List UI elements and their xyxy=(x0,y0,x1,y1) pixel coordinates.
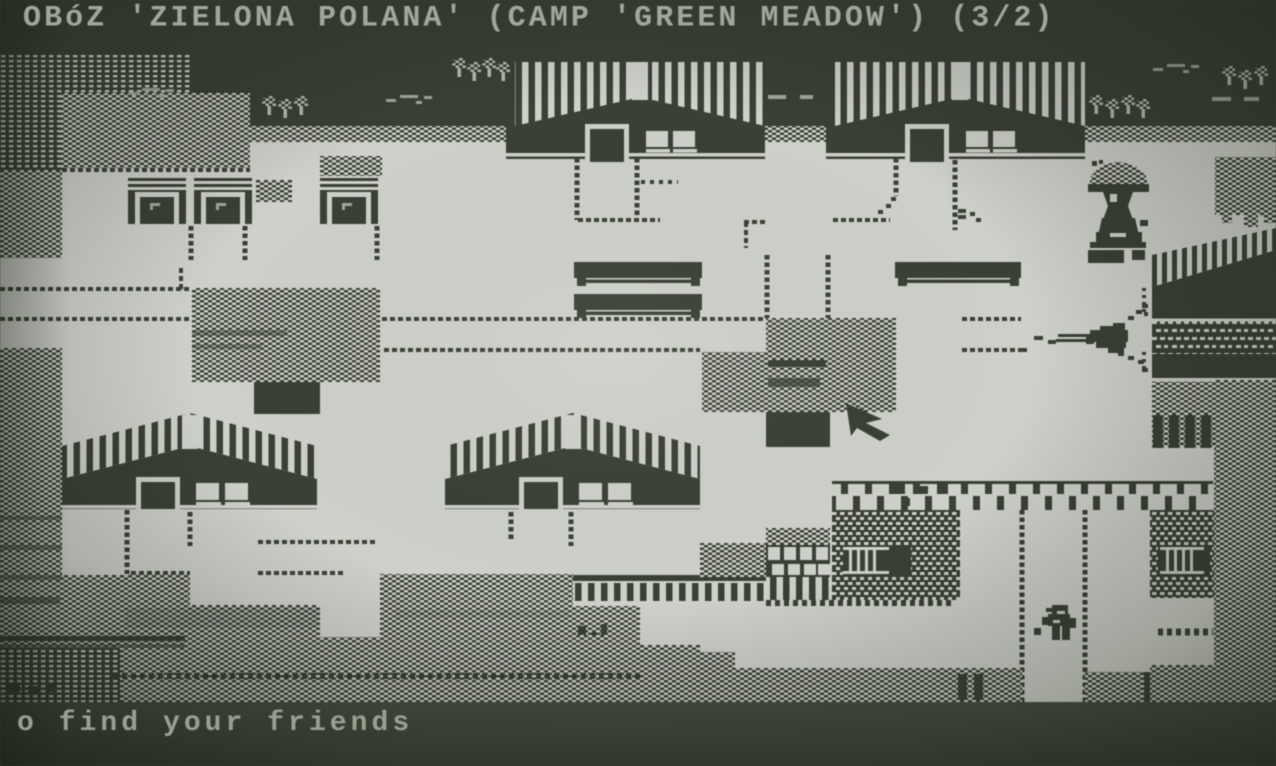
svg-text:o find your friends: o find your friends xyxy=(17,708,413,739)
svg-text:OBóZ 'ZIELONA POLANA' (CAMP 'G: OBóZ 'ZIELONA POLANA' (CAMP 'GREEN MEADO… xyxy=(23,2,1056,36)
